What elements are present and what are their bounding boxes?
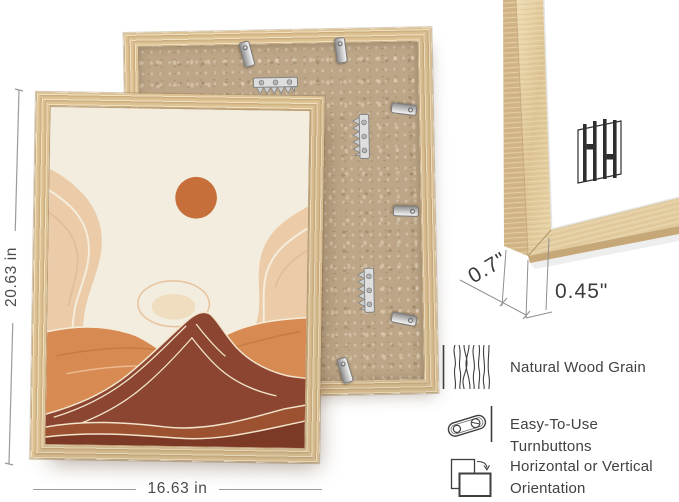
orientation-icon [448,454,494,500]
hh-monogram-icon [578,119,621,183]
frame-corner-closeup: 0.7" 0.45" [440,0,679,335]
frame-front-view [30,92,325,463]
feature-item-turnbuttons: Easy-To-Use Turnbuttons [441,404,677,444]
feature-item-orientation: Horizontal or Vertical Orientation [441,454,677,500]
wood-grain-icon [441,344,493,390]
width-dimension-line-right [219,489,322,490]
height-dimension-label: 20.63 in [3,231,23,323]
boho-mountain-artwork [44,106,310,449]
turnbutton-hardware [336,356,354,384]
width-dimension-line-left [33,489,136,490]
feature-item-wood-grain: Natural Wood Grain [441,344,677,390]
turnbutton-hardware [390,311,418,327]
turnbutton-hardware [390,102,417,116]
turnbutton-hardware [393,205,419,217]
feature-label: Easy-To-Use Turnbuttons [510,414,677,458]
width-dimension-label: 16.63 in [136,480,220,498]
turnbutton-hardware [238,40,255,68]
feature-label: Horizontal or Vertical Orientation [510,456,679,500]
face-dimension-label: 0.45" [555,280,608,303]
sawtooth-hanger [351,267,376,313]
sawtooth-hanger [346,113,371,159]
feature-label: Natural Wood Grain [510,357,646,379]
product-infographic: 20.63 in 16.63 in [0,0,679,502]
artwork-canvas [45,107,309,448]
width-dimension: 16.63 in [33,480,322,498]
turnbutton-icon [446,404,496,444]
frame-corner-wood [503,0,679,269]
